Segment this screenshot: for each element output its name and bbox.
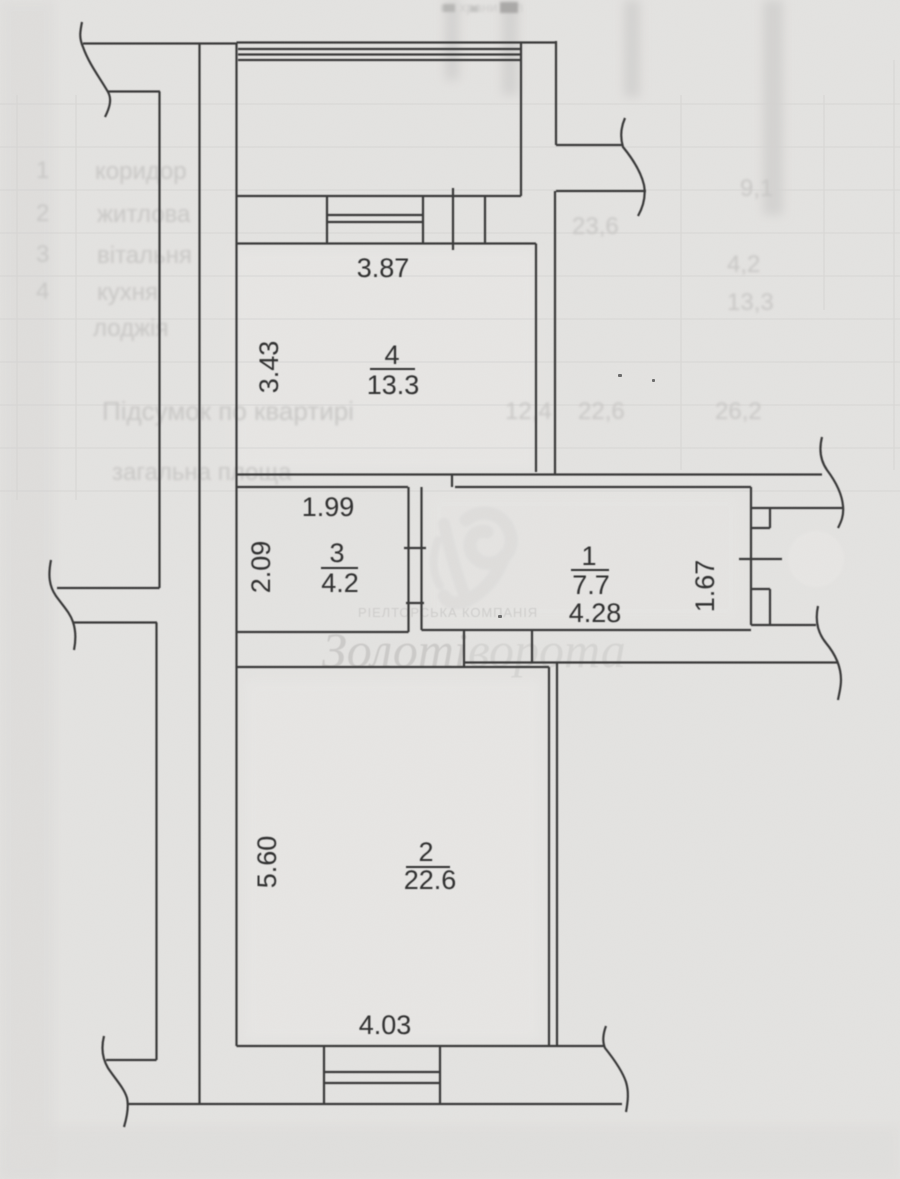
svg-text:4,2: 4,2 xyxy=(727,251,760,278)
svg-text:12,4: 12,4 xyxy=(505,398,552,425)
svg-text:4: 4 xyxy=(36,278,49,305)
svg-text:7.7: 7.7 xyxy=(572,570,610,600)
svg-text:4.2: 4.2 xyxy=(321,568,359,598)
svg-text:13.3: 13.3 xyxy=(367,370,420,400)
svg-text:4.28: 4.28 xyxy=(569,598,622,628)
svg-text:1: 1 xyxy=(36,157,49,184)
svg-text:2: 2 xyxy=(36,200,49,227)
svg-text:22,6: 22,6 xyxy=(578,398,625,425)
svg-text:1.99: 1.99 xyxy=(302,492,355,522)
svg-text:3: 3 xyxy=(36,241,49,268)
svg-text:лоджія: лоджія xyxy=(93,315,168,342)
svg-text:26,2: 26,2 xyxy=(715,398,762,425)
svg-text:3: 3 xyxy=(329,538,344,568)
svg-text:3.43: 3.43 xyxy=(254,341,284,394)
svg-text:2: 2 xyxy=(418,837,433,867)
svg-text:загальна площа: загальна площа xyxy=(112,459,292,486)
svg-text:5.60: 5.60 xyxy=(252,836,282,889)
svg-text:Підсумок по квартирі: Підсумок по квартирі xyxy=(102,396,354,426)
svg-text:9,1: 9,1 xyxy=(740,175,773,202)
svg-text:4.03: 4.03 xyxy=(359,1010,412,1040)
svg-text:1.67: 1.67 xyxy=(690,560,720,613)
svg-text:коридор: коридор xyxy=(95,158,187,185)
svg-text:РІЕЛТОРСЬКА КОМПАНІЯ: РІЕЛТОРСЬКА КОМПАНІЯ xyxy=(358,605,538,620)
svg-text:житлова: житлова xyxy=(97,201,191,228)
svg-text:22.6: 22.6 xyxy=(404,865,457,895)
svg-text:4: 4 xyxy=(384,340,399,370)
svg-text:2.09: 2.09 xyxy=(246,541,276,594)
svg-text:1: 1 xyxy=(581,541,596,571)
svg-text:3.87: 3.87 xyxy=(357,253,410,283)
svg-text:кухня: кухня xyxy=(97,279,158,306)
svg-text:23,6: 23,6 xyxy=(572,213,619,240)
svg-text:вітальня: вітальня xyxy=(97,242,192,269)
svg-text:13,3: 13,3 xyxy=(727,289,774,316)
